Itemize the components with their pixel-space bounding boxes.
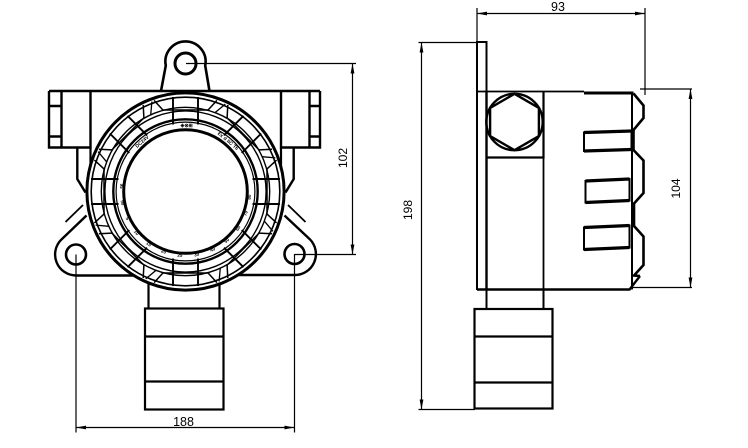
svg-text:◈⊗⊞: ◈⊗⊞ — [179, 123, 192, 129]
svg-text:198: 198 — [401, 200, 415, 220]
svg-text:188: 188 — [173, 415, 194, 429]
svg-text:93: 93 — [551, 0, 565, 14]
svg-text:104: 104 — [669, 178, 683, 198]
svg-text:80: 80 — [247, 194, 252, 200]
svg-text:102: 102 — [336, 148, 350, 168]
svg-text:95: 95 — [119, 183, 124, 189]
svg-text:25: 25 — [177, 253, 183, 258]
